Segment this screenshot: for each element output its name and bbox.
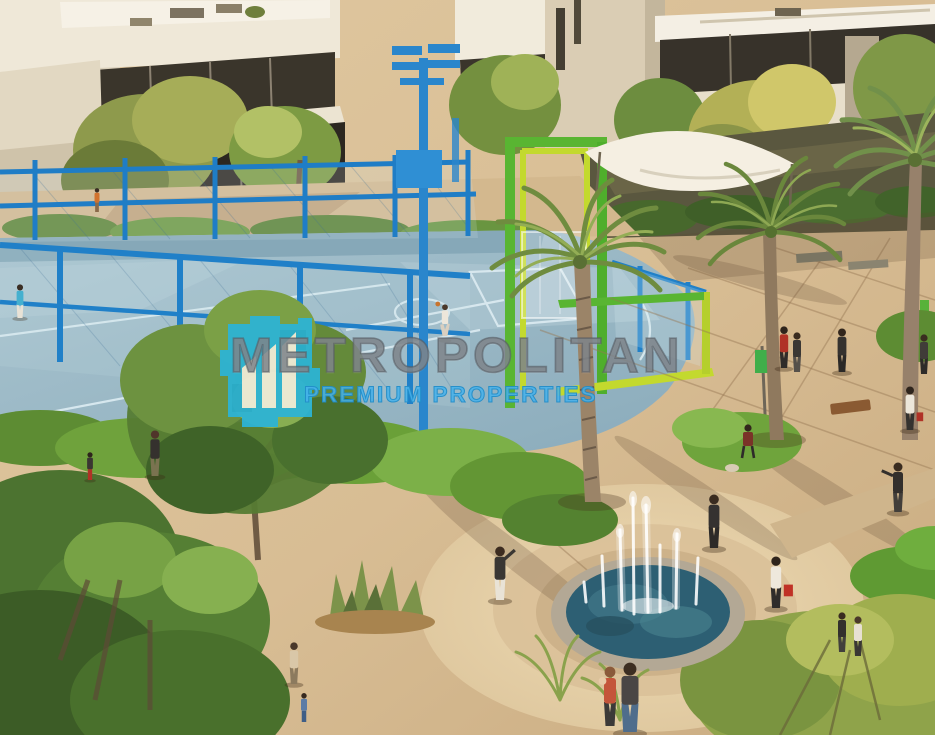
person xyxy=(301,693,307,722)
listing-photo: METROPOLITAN PREMIUM PROPERTIES xyxy=(0,0,935,735)
scene-render xyxy=(0,0,935,735)
court-sign-panel xyxy=(396,150,442,188)
person xyxy=(95,188,100,212)
dog xyxy=(725,464,739,472)
